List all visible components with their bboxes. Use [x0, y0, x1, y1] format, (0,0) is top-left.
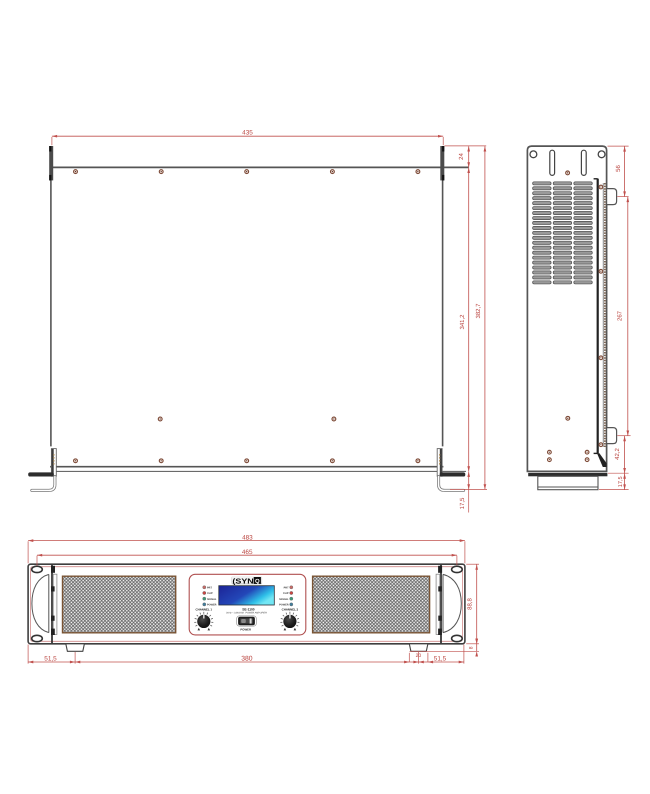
svg-text:SIGNAL: SIGNAL — [207, 598, 217, 601]
svg-text:CLIP: CLIP — [207, 592, 213, 595]
svg-text:CHANNEL 2: CHANNEL 2 — [282, 608, 299, 612]
svg-text:51,5: 51,5 — [434, 655, 447, 662]
svg-text:CLIP: CLIP — [283, 592, 289, 595]
svg-text:POWER: POWER — [279, 604, 289, 607]
svg-text:PRT: PRT — [284, 586, 289, 589]
svg-text:SIGNAL: SIGNAL — [279, 598, 289, 601]
svg-text:8: 8 — [468, 646, 474, 649]
svg-text:42,2: 42,2 — [614, 448, 621, 460]
svg-text:CHANNEL 1: CHANNEL 1 — [196, 608, 213, 612]
svg-text:(SYN: (SYN — [232, 576, 253, 585]
svg-text:56: 56 — [615, 165, 622, 172]
svg-text:PRT: PRT — [207, 586, 212, 589]
svg-text:POWER: POWER — [240, 628, 251, 632]
svg-text:465: 465 — [242, 549, 253, 556]
svg-text:483: 483 — [242, 534, 253, 541]
svg-text:382,7: 382,7 — [475, 303, 482, 319]
svg-text:88,8: 88,8 — [466, 598, 473, 610]
svg-text:POWER: POWER — [207, 604, 217, 607]
svg-text:20Hz - 1.8KOHM POWER AMPLIFI: 20Hz - 1.8KOHM POWER AMPLIFIER — [226, 612, 267, 615]
svg-text:51,5: 51,5 — [44, 655, 57, 662]
svg-text:17,5: 17,5 — [459, 497, 466, 509]
svg-text:17,5: 17,5 — [618, 476, 624, 487]
svg-text:Q: Q — [255, 578, 260, 585]
svg-text:341,2: 341,2 — [459, 314, 466, 330]
svg-text:435: 435 — [242, 130, 253, 137]
svg-text:380: 380 — [241, 655, 253, 662]
svg-text:20: 20 — [416, 653, 422, 659]
svg-text:24: 24 — [458, 153, 465, 160]
svg-text:SE-1100: SE-1100 — [242, 607, 254, 611]
svg-text:267: 267 — [616, 310, 623, 321]
